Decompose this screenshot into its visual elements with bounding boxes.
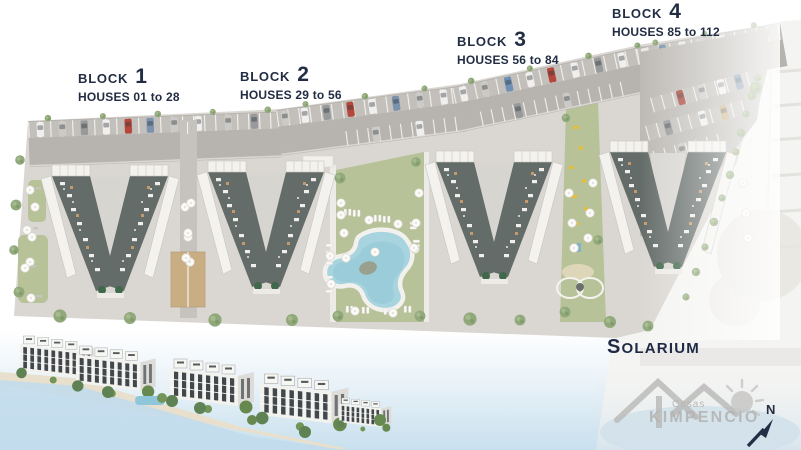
block-3-word: BLOCK <box>457 35 507 48</box>
logo-name: KIMPENCIO <box>649 409 759 427</box>
block-1-label: BLOCK 1 HOUSES 01 to 28 <box>78 66 180 103</box>
block-3-houses: HOUSES 56 to 84 <box>457 54 559 66</box>
north-label: N <box>766 402 775 417</box>
block-2-word: BLOCK <box>240 70 290 83</box>
masterplan-page: BLOCK 1 HOUSES 01 to 28 BLOCK 2 HOUSES 2… <box>0 0 801 450</box>
right-fade-overlay <box>640 20 780 340</box>
block-2-houses: HOUSES 29 to 56 <box>240 89 342 101</box>
solarium-label: SOLARIUM <box>607 336 700 359</box>
block-4-label: BLOCK 4 HOUSES 85 to 112 <box>612 1 720 38</box>
block-4-number: 4 <box>669 1 681 22</box>
block-2-label: BLOCK 2 HOUSES 29 to 56 <box>240 64 342 101</box>
block-1-number: 1 <box>135 66 147 87</box>
block-1-word: BLOCK <box>78 72 128 85</box>
block-2-number: 2 <box>297 64 309 85</box>
block-4-word: BLOCK <box>612 7 662 20</box>
block-3-label: BLOCK 3 HOUSES 56 to 84 <box>457 29 559 66</box>
block-3-number: 3 <box>514 29 526 50</box>
block-4-houses: HOUSES 85 to 112 <box>612 26 720 38</box>
block-1-houses: HOUSES 01 to 28 <box>78 91 180 103</box>
